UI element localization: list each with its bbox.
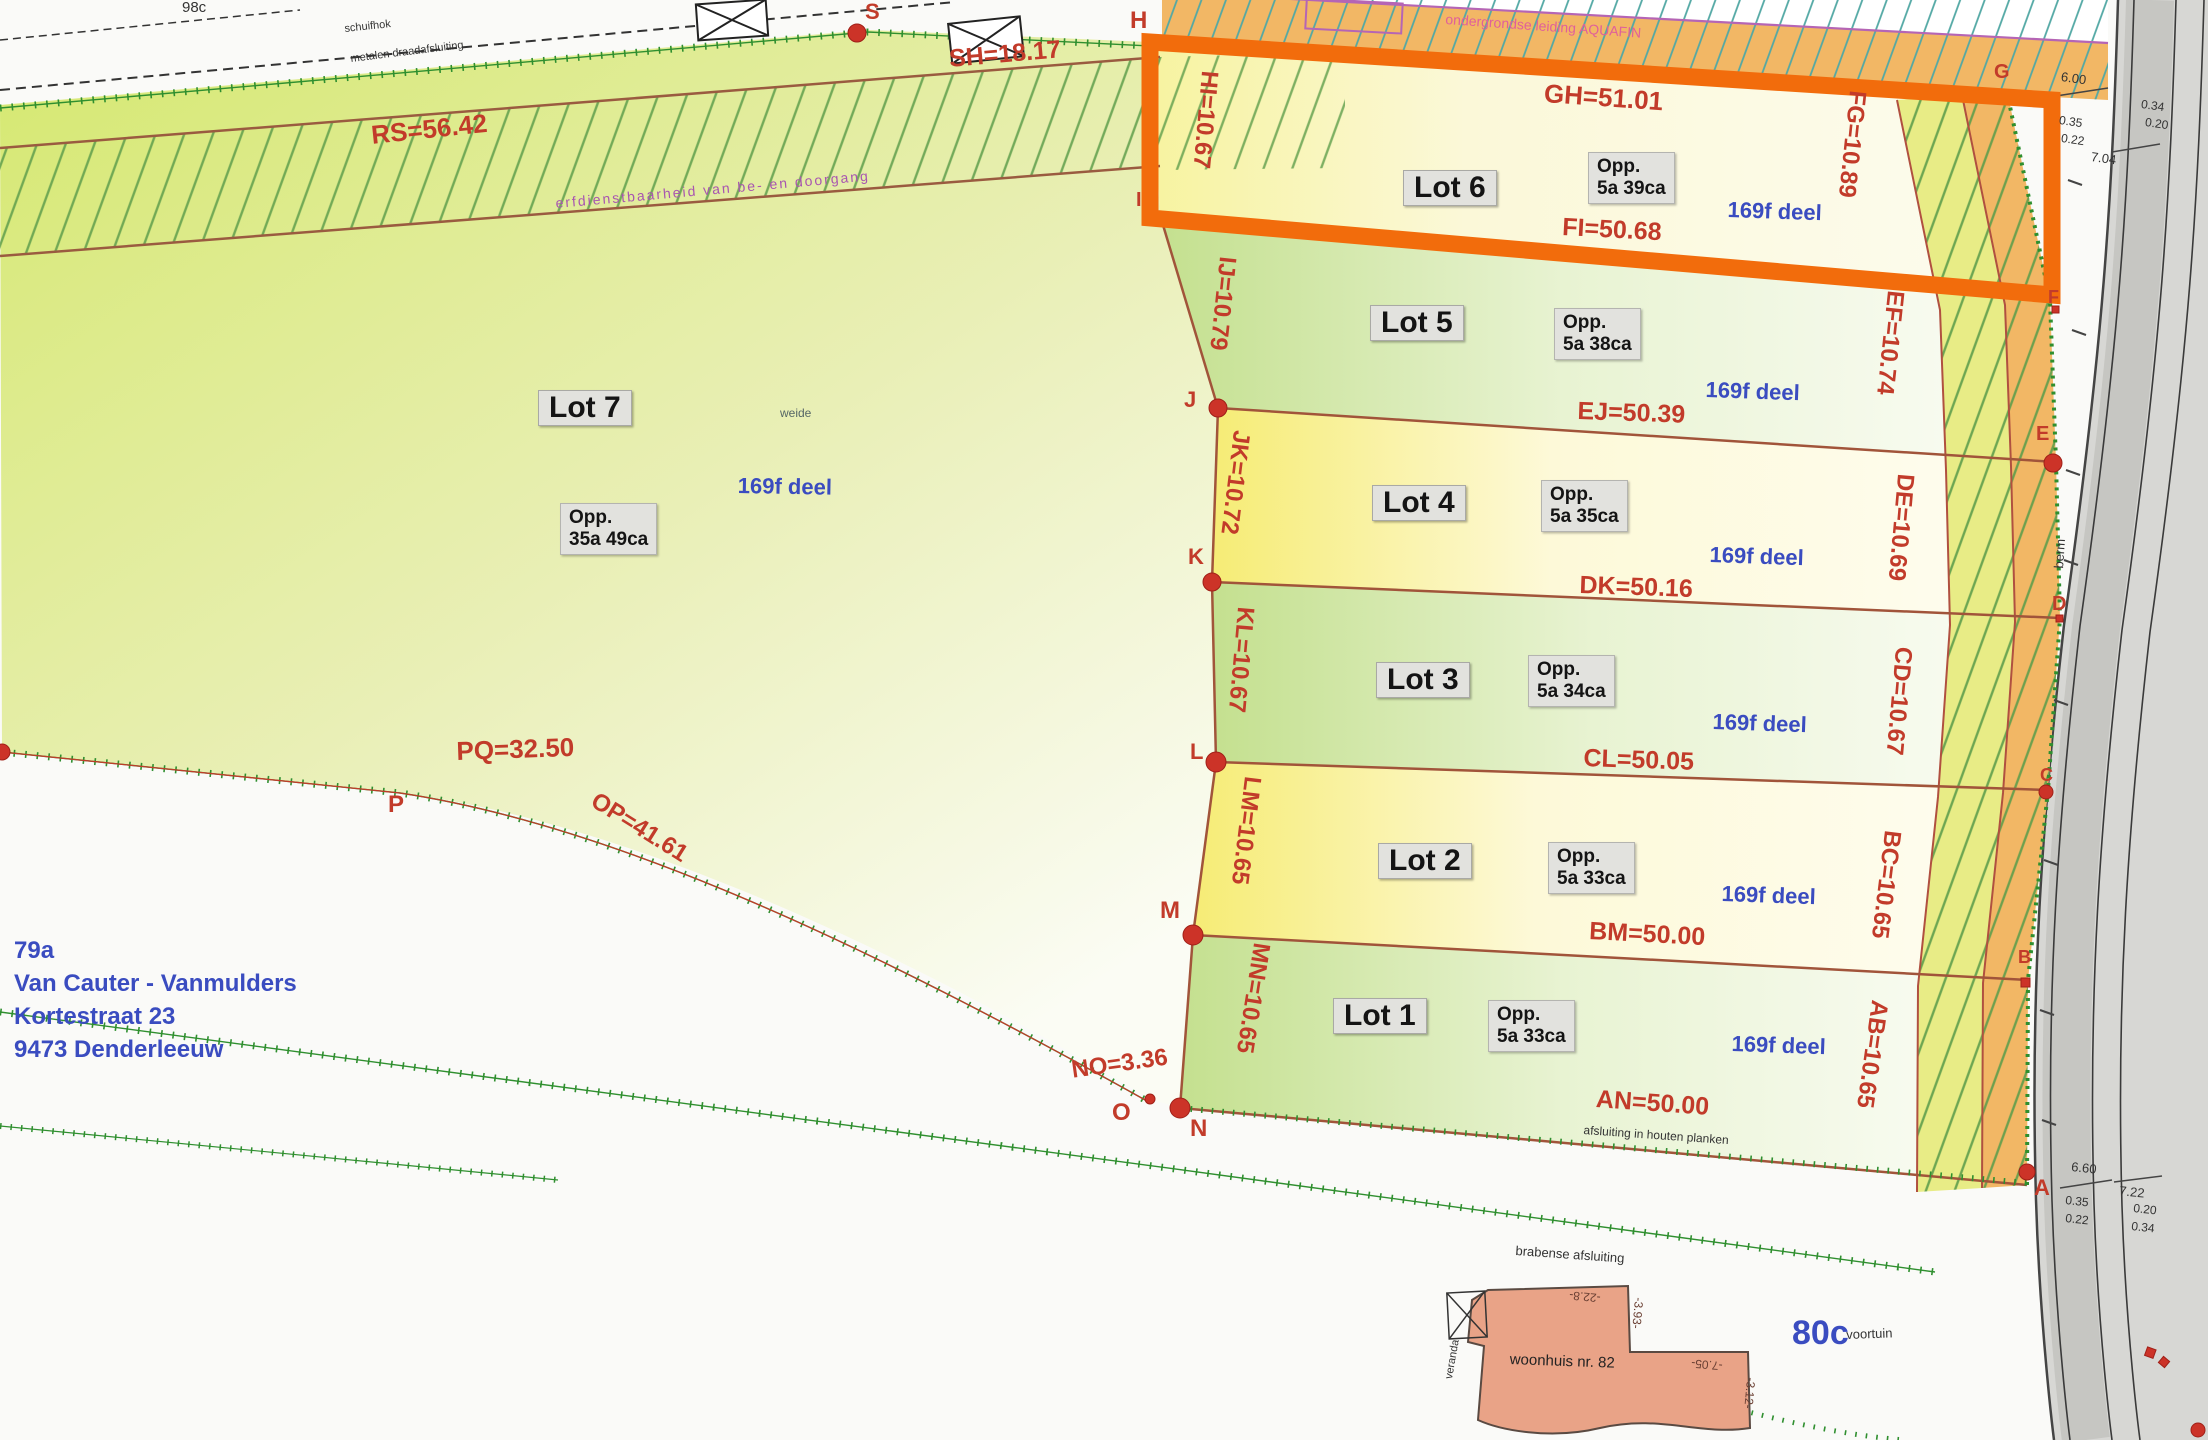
point-label-m: M — [1160, 898, 1180, 923]
house-dim-top: -22.8- — [1569, 1289, 1601, 1304]
lot5-area-title: Opp. — [1563, 312, 1632, 334]
lot3-area-value: 5a 34ca — [1537, 681, 1606, 703]
point-label-h: H — [1130, 8, 1147, 33]
point-label-k: K — [1188, 545, 1204, 568]
lot4-area-box: Opp. 5a 35ca — [1541, 480, 1628, 532]
measurement-cl: CL=50.05 — [1583, 745, 1694, 775]
lot6-area-box: Opp. 5a 39ca — [1588, 152, 1675, 204]
parcel-number-98c: 98c — [182, 0, 206, 16]
point-label-a: A — [2034, 1176, 2050, 1199]
lot3-area-box: Opp. 5a 34ca — [1528, 655, 1615, 707]
house-label: woonhuis nr. 82 — [1509, 1352, 1615, 1371]
lot2-area-box: Opp. 5a 33ca — [1548, 842, 1635, 894]
lot7-area-title: Opp. — [569, 507, 648, 529]
measurement-pq: PQ=32.50 — [456, 734, 575, 765]
road-dim-bottom-1: 0.35 — [2065, 1194, 2090, 1209]
road-dim-top-3: 7.04 — [2090, 150, 2117, 167]
house-dim-mid: -7.05- — [1691, 1357, 1723, 1372]
lot4-area-title: Opp. — [1550, 484, 1619, 506]
pylon-symbol — [696, 0, 768, 40]
lot2-label: Lot 2 — [1378, 843, 1472, 879]
measurement-bm: BM=50.00 — [1589, 918, 1706, 950]
lot4-label: Lot 4 — [1372, 485, 1466, 521]
lot6-area-title: Opp. — [1597, 156, 1666, 178]
lot7-deel: 169f deel — [738, 474, 833, 499]
lot4-area-value: 5a 35ca — [1550, 506, 1619, 528]
lot1-area-value: 5a 33ca — [1497, 1026, 1566, 1048]
point-label-i: I — [1136, 190, 1142, 211]
lot5-deel: 169f deel — [1705, 378, 1800, 404]
road-dim-bottom-2: 0.22 — [2065, 1212, 2090, 1227]
house-dim-right: -3.93- — [1630, 1297, 1645, 1329]
road-dim-bottom-0: 6.60 — [2071, 1160, 2098, 1176]
point-label-g: G — [1994, 62, 2010, 83]
lot1-label: Lot 1 — [1333, 998, 1427, 1034]
road-dim-top-4: 0.34 — [2140, 98, 2165, 114]
point-label-d: D — [2052, 594, 2066, 615]
front-garden-label: voortuin — [1846, 1326, 1893, 1341]
lot7-area-box: Opp. 35a 49ca — [560, 503, 657, 555]
road-dim-bottom-3: 7.22 — [2119, 1184, 2146, 1200]
road-dim-top-0: 6.00 — [2060, 70, 2087, 87]
point-label-o: O — [1112, 1100, 1131, 1125]
lot3-deel: 169f deel — [1712, 710, 1807, 736]
road-dim-top-2: 0.22 — [2060, 132, 2085, 148]
point-label-c: C — [2040, 766, 2053, 785]
point-label-s: S — [865, 0, 880, 23]
lot1-area-title: Opp. — [1497, 1004, 1566, 1026]
owner-name: Van Cauter - Vanmulders — [14, 967, 297, 1000]
owner-block: 79a Van Cauter - Vanmulders Kortestraat … — [14, 934, 297, 1066]
point-label-e: E — [2036, 424, 2049, 445]
road-dim-top-1: 0.35 — [2058, 114, 2083, 130]
berm-label: berm — [2052, 538, 2068, 569]
point-label-n: N — [1190, 1116, 1207, 1141]
lot5-area-box: Opp. 5a 38ca — [1554, 308, 1641, 360]
house-parcel-number: 80c — [1792, 1316, 1849, 1352]
road-dim-top-5: 0.20 — [2144, 116, 2169, 132]
lot5-label: Lot 5 — [1370, 305, 1464, 341]
measurement-dk: DK=50.16 — [1579, 572, 1693, 602]
owner-city: 9473 Denderleeuw — [14, 1033, 297, 1066]
lot3-area-title: Opp. — [1537, 659, 1606, 681]
point-label-p: P — [388, 792, 404, 817]
owner-street: Kortestraat 23 — [14, 1000, 297, 1033]
plan-drawing — [0, 0, 2208, 1440]
point-label-f: F — [2048, 288, 2059, 307]
point-label-l: L — [1190, 740, 1203, 763]
lot7-label: Lot 7 — [538, 390, 632, 426]
lot2-area-value: 5a 33ca — [1557, 868, 1626, 890]
lot2-deel: 169f deel — [1721, 882, 1816, 908]
measurement-fi: FI=50.68 — [1562, 214, 1663, 245]
lot1-area-box: Opp. 5a 33ca — [1488, 1000, 1575, 1052]
cadastral-subdivision-plan: RS=56.42 SH=18.17 GH=51.01 FI=50.68 EJ=5… — [0, 0, 2208, 1440]
point-label-j: J — [1184, 388, 1196, 411]
lot5-area-value: 5a 38ca — [1563, 334, 1632, 356]
road-dim-bottom-5: 0.34 — [2131, 1220, 2156, 1235]
lot7-area-value: 35a 49ca — [569, 529, 648, 551]
house-dim-side: -3.12- — [1742, 1377, 1757, 1409]
lot6-label: Lot 6 — [1403, 170, 1497, 206]
point-label-b: B — [2018, 948, 2031, 967]
lot6-area-value: 5a 39ca — [1597, 178, 1666, 200]
lot7-landuse: weide — [780, 407, 811, 420]
road-dim-bottom-4: 0.20 — [2133, 1202, 2158, 1217]
owner-parcel: 79a — [14, 934, 297, 967]
lot3-label: Lot 3 — [1376, 662, 1470, 698]
lot2-area-title: Opp. — [1557, 846, 1626, 868]
lot1-deel: 169f deel — [1731, 1032, 1826, 1058]
lot6-deel: 169f deel — [1727, 198, 1822, 224]
measurement-ej: EJ=50.39 — [1577, 398, 1686, 428]
lot4-deel: 169f deel — [1709, 543, 1804, 569]
